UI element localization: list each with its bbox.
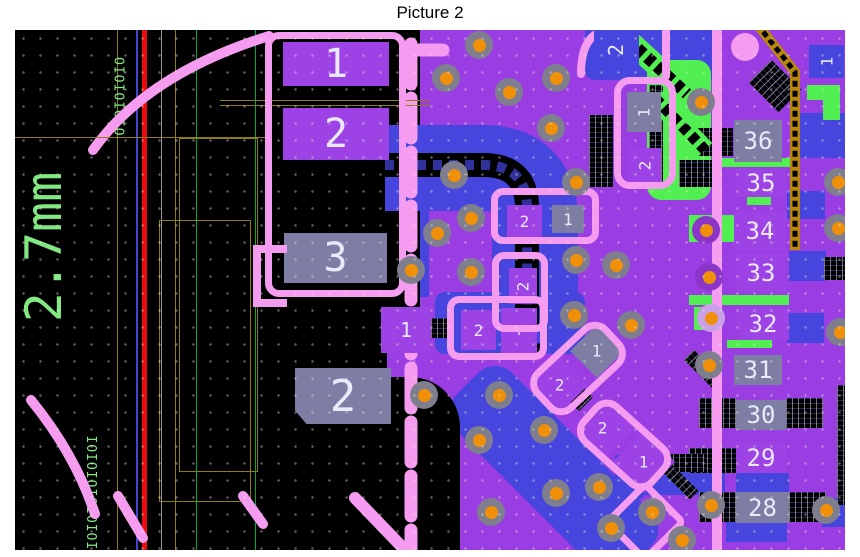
via-hole <box>493 389 506 402</box>
footprint-outline-big <box>265 32 406 297</box>
via-hole <box>832 222 845 235</box>
pad-large-gray: 2 <box>295 368 391 424</box>
via <box>397 256 425 284</box>
via-hole <box>705 312 718 325</box>
via <box>687 88 715 116</box>
footprint-stub-left-top <box>253 245 287 253</box>
via <box>542 479 570 507</box>
via-hole <box>646 506 659 519</box>
via-hole <box>550 487 563 500</box>
footprint-stub-left-bot <box>253 299 287 307</box>
via-hole <box>405 264 418 277</box>
pink-circle-pad <box>731 33 759 61</box>
connector-pad-32: 32 <box>737 307 789 340</box>
connector-pad-36: 36 <box>734 120 782 162</box>
via-hole <box>465 212 478 225</box>
pcb-layout-image: 2.7mm OIOIOIOIO OIOIOIOIOIOIOI <box>15 30 845 550</box>
silkscreen-stub-2 <box>243 496 263 524</box>
via <box>465 426 493 454</box>
via-hole <box>834 326 846 339</box>
via <box>440 161 468 189</box>
via <box>692 216 720 244</box>
via-hole <box>473 434 486 447</box>
via-hole <box>545 122 558 135</box>
via <box>530 416 558 444</box>
silkscreen-stub-3 <box>355 498 405 550</box>
via <box>457 204 485 232</box>
outline-trio <box>447 296 547 360</box>
outline-top-pair <box>614 77 676 189</box>
via <box>432 64 460 92</box>
via <box>668 526 696 550</box>
silkscreen-arc-bottom <box>31 400 95 514</box>
footprint-stub-left <box>253 245 261 307</box>
via <box>423 219 451 247</box>
via <box>495 78 523 106</box>
connector-pad-35: 35 <box>736 168 786 197</box>
via <box>602 251 630 279</box>
pad-right-edge: 1 <box>809 45 844 78</box>
via-hole <box>568 309 581 322</box>
via <box>562 246 590 274</box>
via-hole <box>700 224 713 237</box>
connector-pad-33: 33 <box>736 253 786 292</box>
via <box>410 381 438 409</box>
via <box>560 301 588 329</box>
via-hole <box>538 424 551 437</box>
via-hole <box>820 504 833 517</box>
via-hole <box>570 176 583 189</box>
connector-pad-31: 31 <box>734 355 782 385</box>
via-hole <box>485 506 498 519</box>
connector-pad-30: 30 <box>736 400 786 430</box>
connector-pad-29: 29 <box>736 442 786 473</box>
via-hole <box>605 522 618 535</box>
via-hole <box>593 481 606 494</box>
via-hole <box>448 169 461 182</box>
via <box>465 31 493 59</box>
pad-top-blue: 2 <box>594 30 639 70</box>
via <box>585 473 613 501</box>
via <box>597 514 625 542</box>
picture-caption: Picture 2 <box>0 3 860 23</box>
via-hole <box>550 72 563 85</box>
document-page: Picture 2 <box>0 0 860 557</box>
via <box>697 491 725 519</box>
via <box>697 304 725 332</box>
via <box>812 496 840 524</box>
via <box>695 263 723 291</box>
via <box>542 64 570 92</box>
via-hole <box>418 389 431 402</box>
via <box>477 498 505 526</box>
via-hole <box>610 259 623 272</box>
silkscreen-arc-top <box>93 36 269 150</box>
via <box>457 258 485 286</box>
via <box>824 168 845 196</box>
outline-pair <box>491 188 599 244</box>
via-hole <box>695 96 708 109</box>
via-hole <box>703 359 716 372</box>
grid-hline-olive-3 <box>15 137 272 138</box>
via-hole <box>473 39 486 52</box>
via <box>695 351 723 379</box>
via <box>485 381 513 409</box>
traces-layer <box>15 30 845 550</box>
via <box>617 311 645 339</box>
connector-pad-28: 28 <box>736 492 789 523</box>
via-hole <box>676 534 689 547</box>
via <box>537 114 565 142</box>
via <box>638 498 666 526</box>
via <box>562 168 590 196</box>
via-hole <box>503 86 516 99</box>
silkscreen-stub-1 <box>118 496 143 538</box>
via-hole <box>465 266 478 279</box>
via-hole <box>703 271 716 284</box>
via-hole <box>570 254 583 267</box>
via-hole <box>705 499 718 512</box>
pad-single: 1 <box>381 307 431 353</box>
via-hole <box>625 319 638 332</box>
via <box>824 214 845 242</box>
via-hole <box>431 227 444 240</box>
via-hole <box>832 176 845 189</box>
via-hole <box>440 72 453 85</box>
connector-pad-34: 34 <box>734 212 786 250</box>
